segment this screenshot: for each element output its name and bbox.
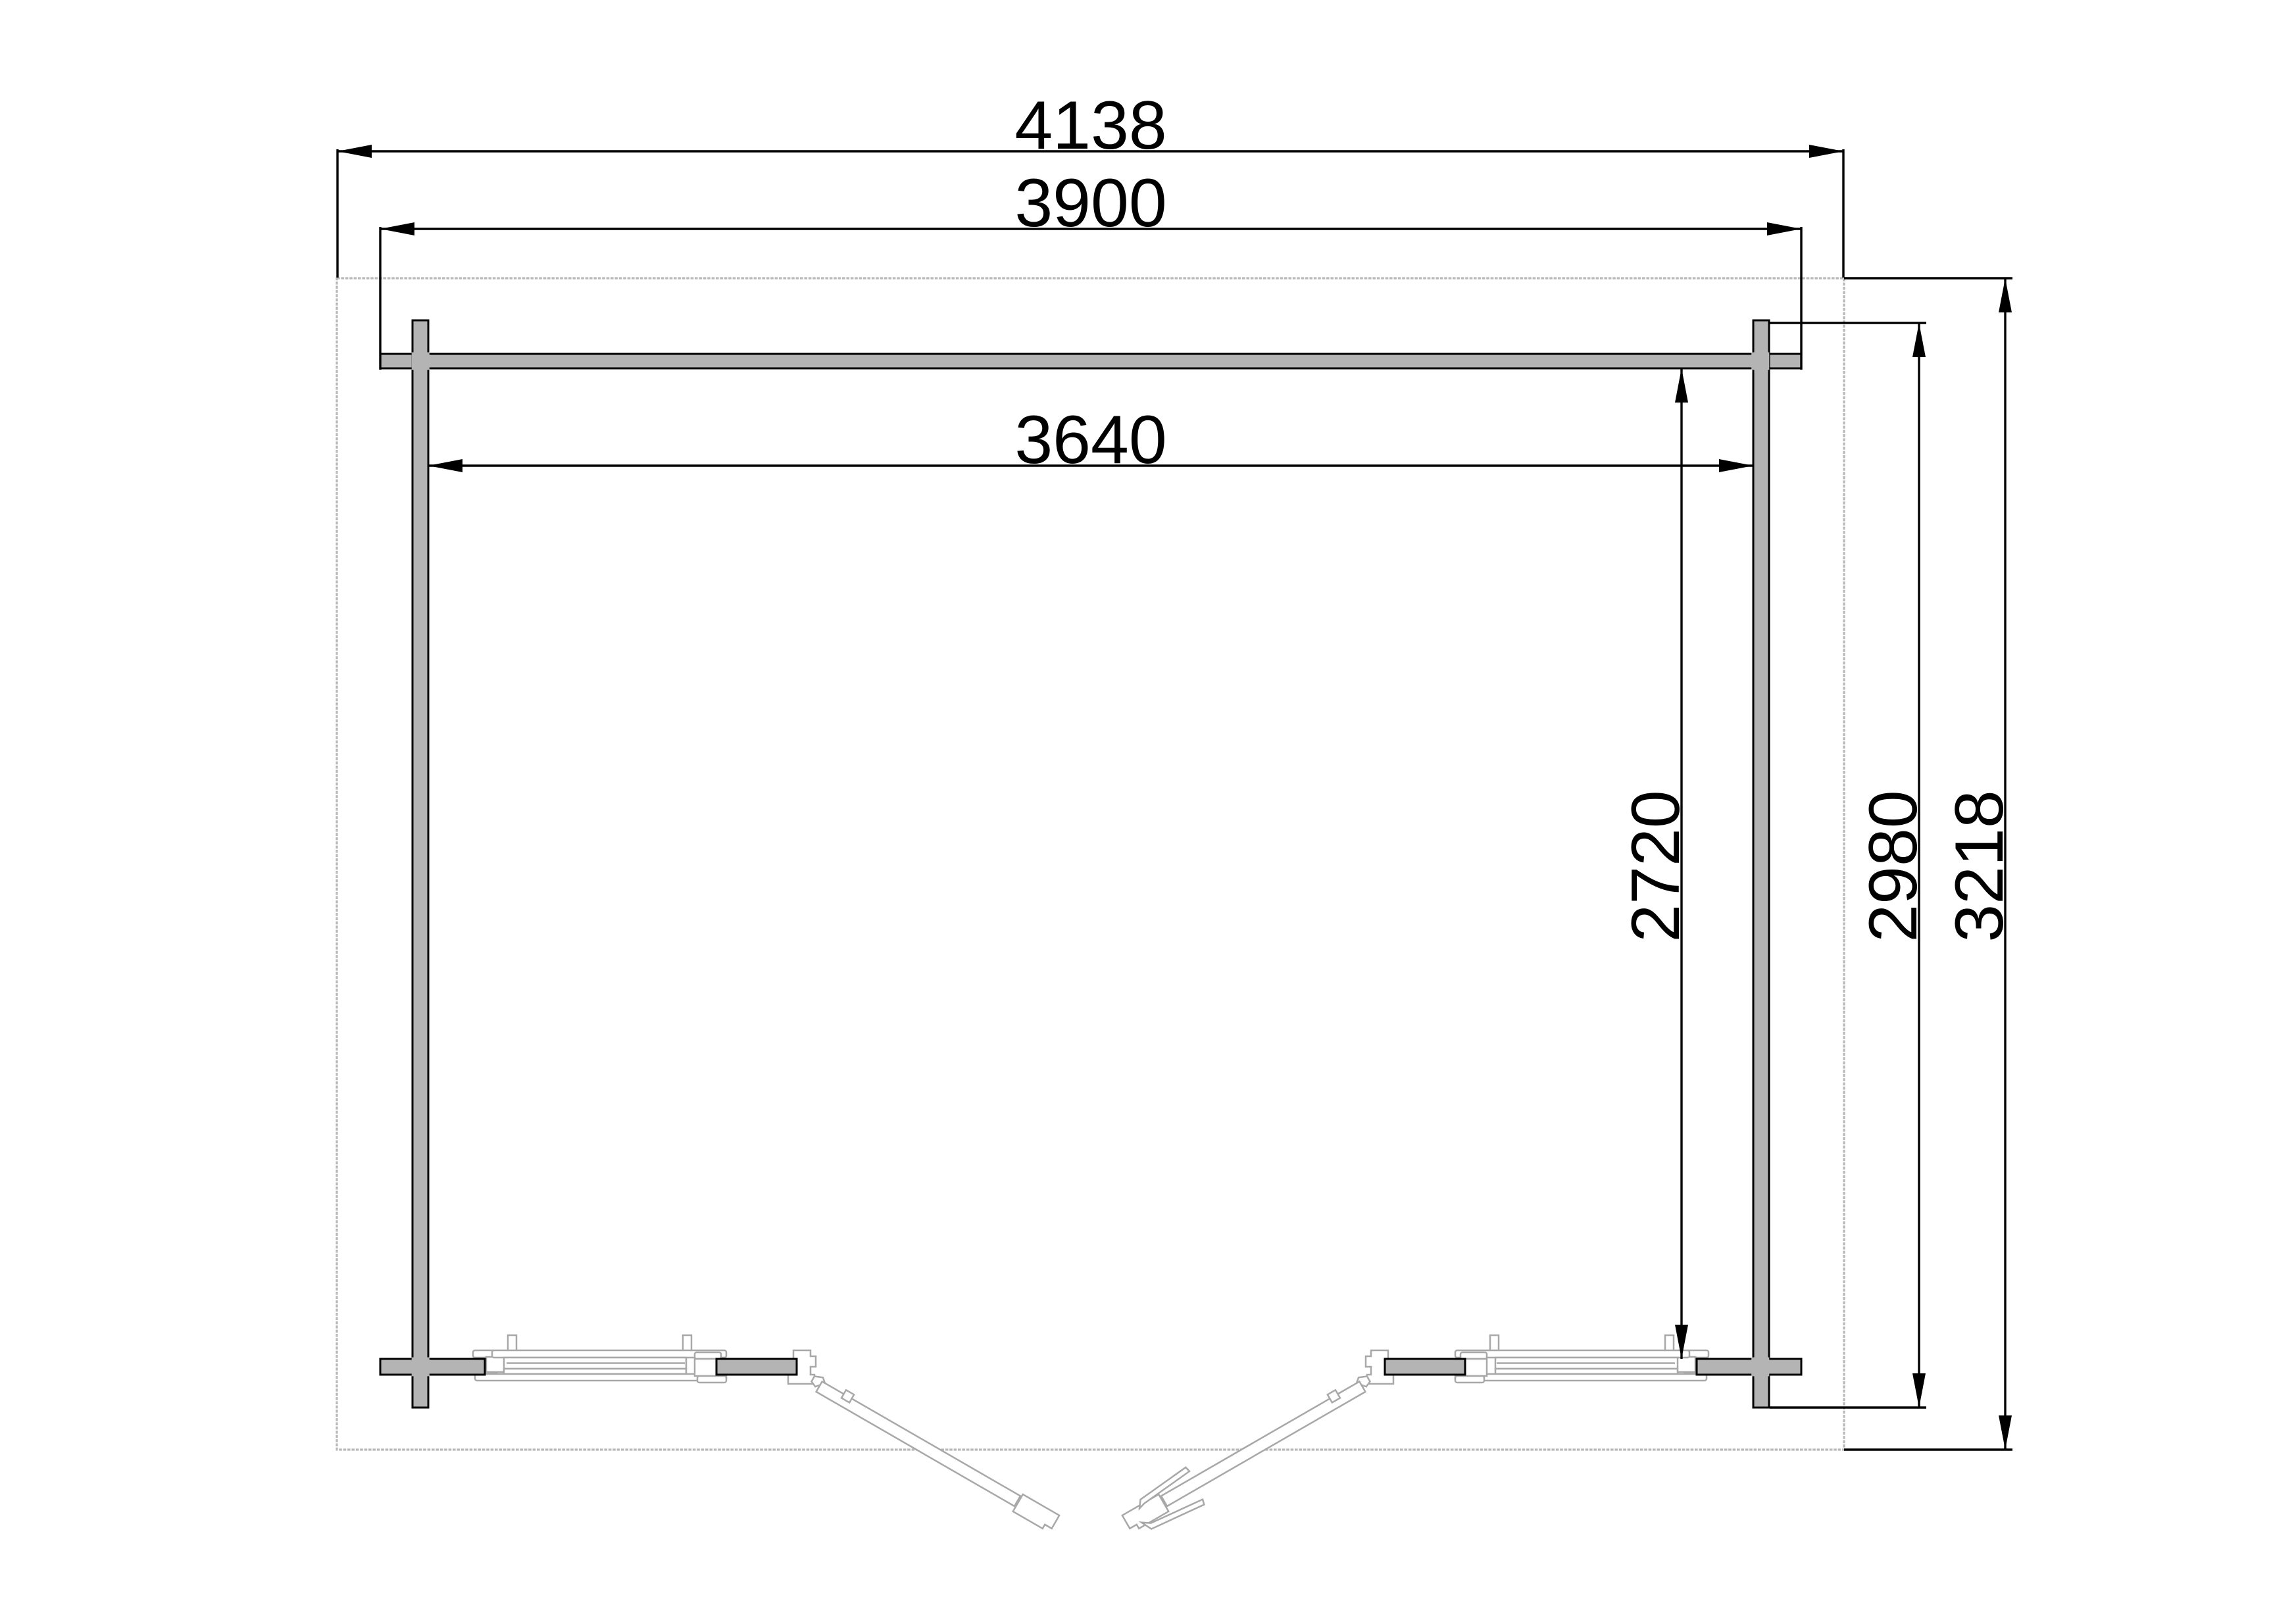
svg-text:4138: 4138 bbox=[1014, 87, 1166, 164]
svg-text:2720: 2720 bbox=[1618, 790, 1694, 942]
svg-text:3900: 3900 bbox=[1014, 165, 1166, 241]
svg-text:3640: 3640 bbox=[1014, 402, 1166, 478]
svg-text:3218: 3218 bbox=[1941, 790, 2018, 942]
svg-text:2980: 2980 bbox=[1855, 790, 1932, 942]
